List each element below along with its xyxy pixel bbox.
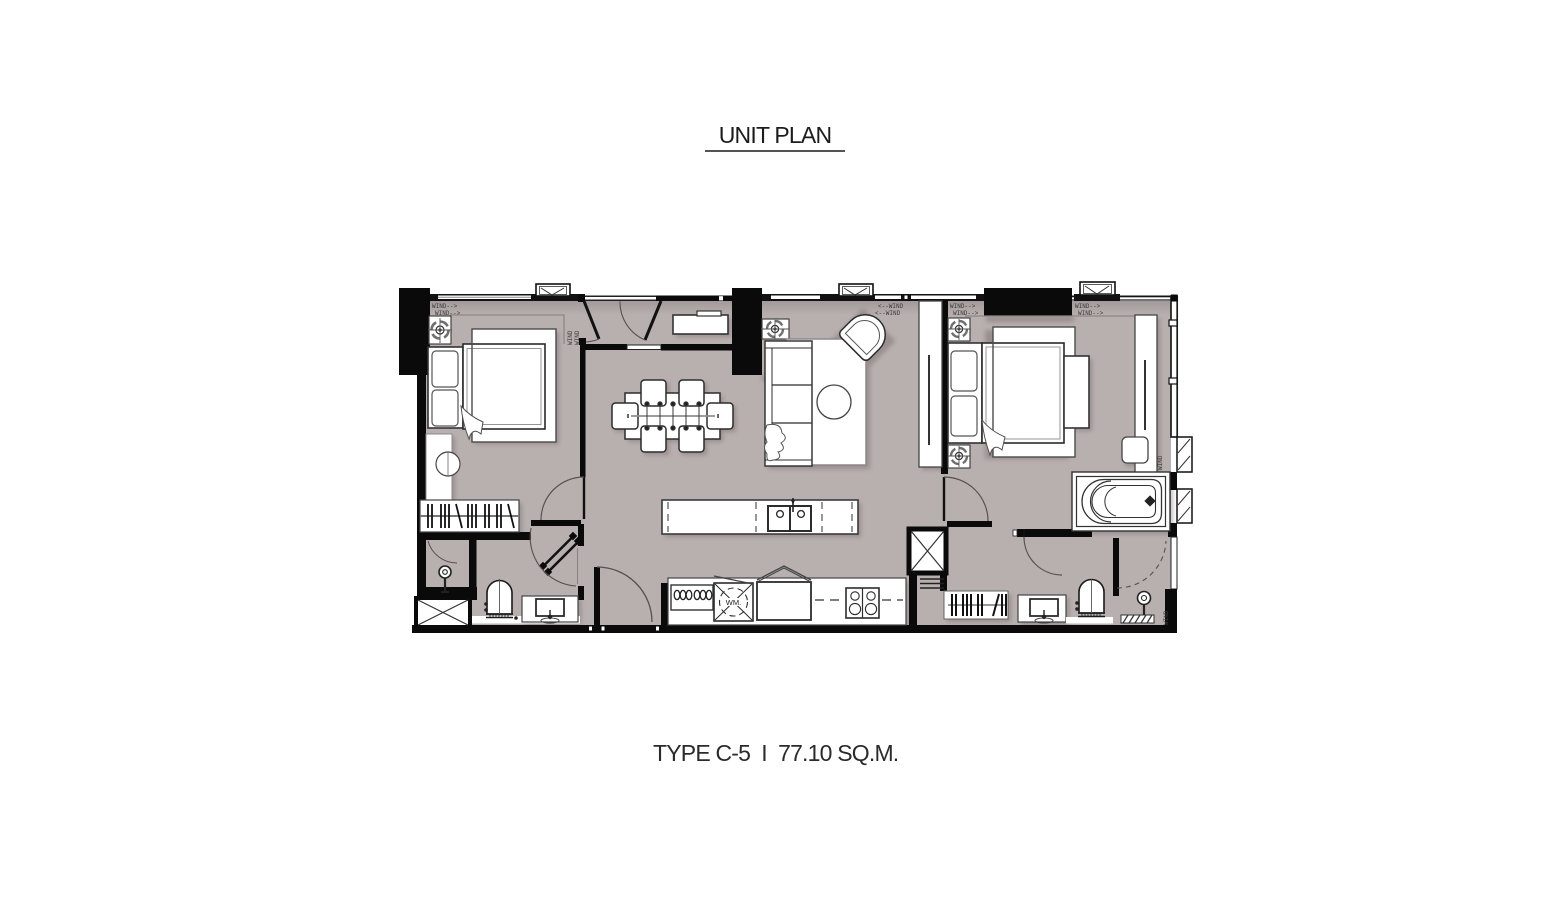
svg-text:WIND-->: WIND--> xyxy=(953,310,979,317)
svg-text:WIND-->: WIND--> xyxy=(435,310,461,317)
svg-text:WIND: WIND xyxy=(574,330,581,345)
svg-text:WM.: WM. xyxy=(726,598,741,607)
svg-text:<--WIND: <--WIND xyxy=(878,303,904,310)
svg-text:WIND: WIND xyxy=(1163,610,1170,625)
svg-text:<--WIND: <--WIND xyxy=(875,310,901,317)
svg-text:WIND: WIND xyxy=(567,330,574,345)
svg-text:WIND-->: WIND--> xyxy=(1075,303,1101,310)
svg-text:WIND-->: WIND--> xyxy=(432,303,458,310)
svg-text:WIND-->: WIND--> xyxy=(950,303,976,310)
svg-text:WIND-->: WIND--> xyxy=(1078,310,1104,317)
svg-text:WIND: WIND xyxy=(1157,455,1164,470)
